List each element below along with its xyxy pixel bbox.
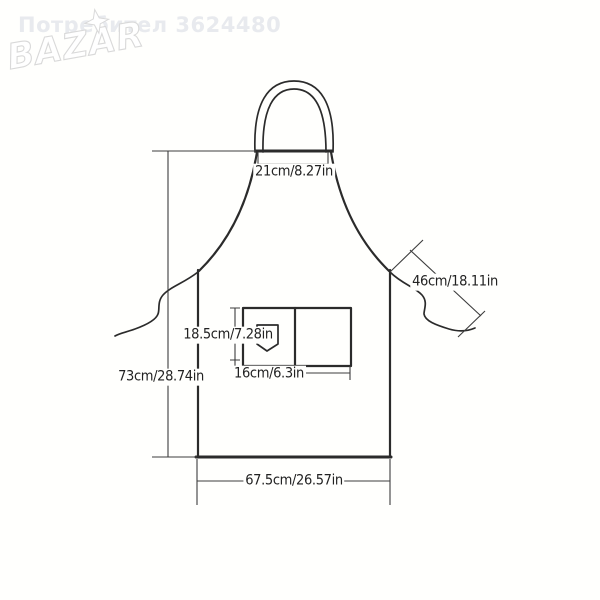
label-pocket-width: 16cm/6.3in: [232, 366, 306, 383]
bazar-logo-text: BAZAR: [4, 15, 145, 78]
bazar-logo: BAZAR: [0, 0, 145, 78]
body-edges: [196, 270, 391, 457]
label-body-height: 73cm/28.74in: [116, 369, 205, 386]
apron-diagram: [0, 0, 600, 600]
neck-strap: [255, 81, 333, 152]
label-neck-width: 21cm/8.27in: [253, 164, 334, 181]
label-strap-length: 46cm/18.11in: [410, 274, 499, 291]
label-body-width: 67.5cm/26.57in: [243, 473, 344, 490]
product-image: Потребител 3624480: [0, 0, 600, 600]
label-pocket-height: 18.5cm/7.28in: [181, 327, 274, 344]
dim-body-height: [152, 151, 256, 457]
